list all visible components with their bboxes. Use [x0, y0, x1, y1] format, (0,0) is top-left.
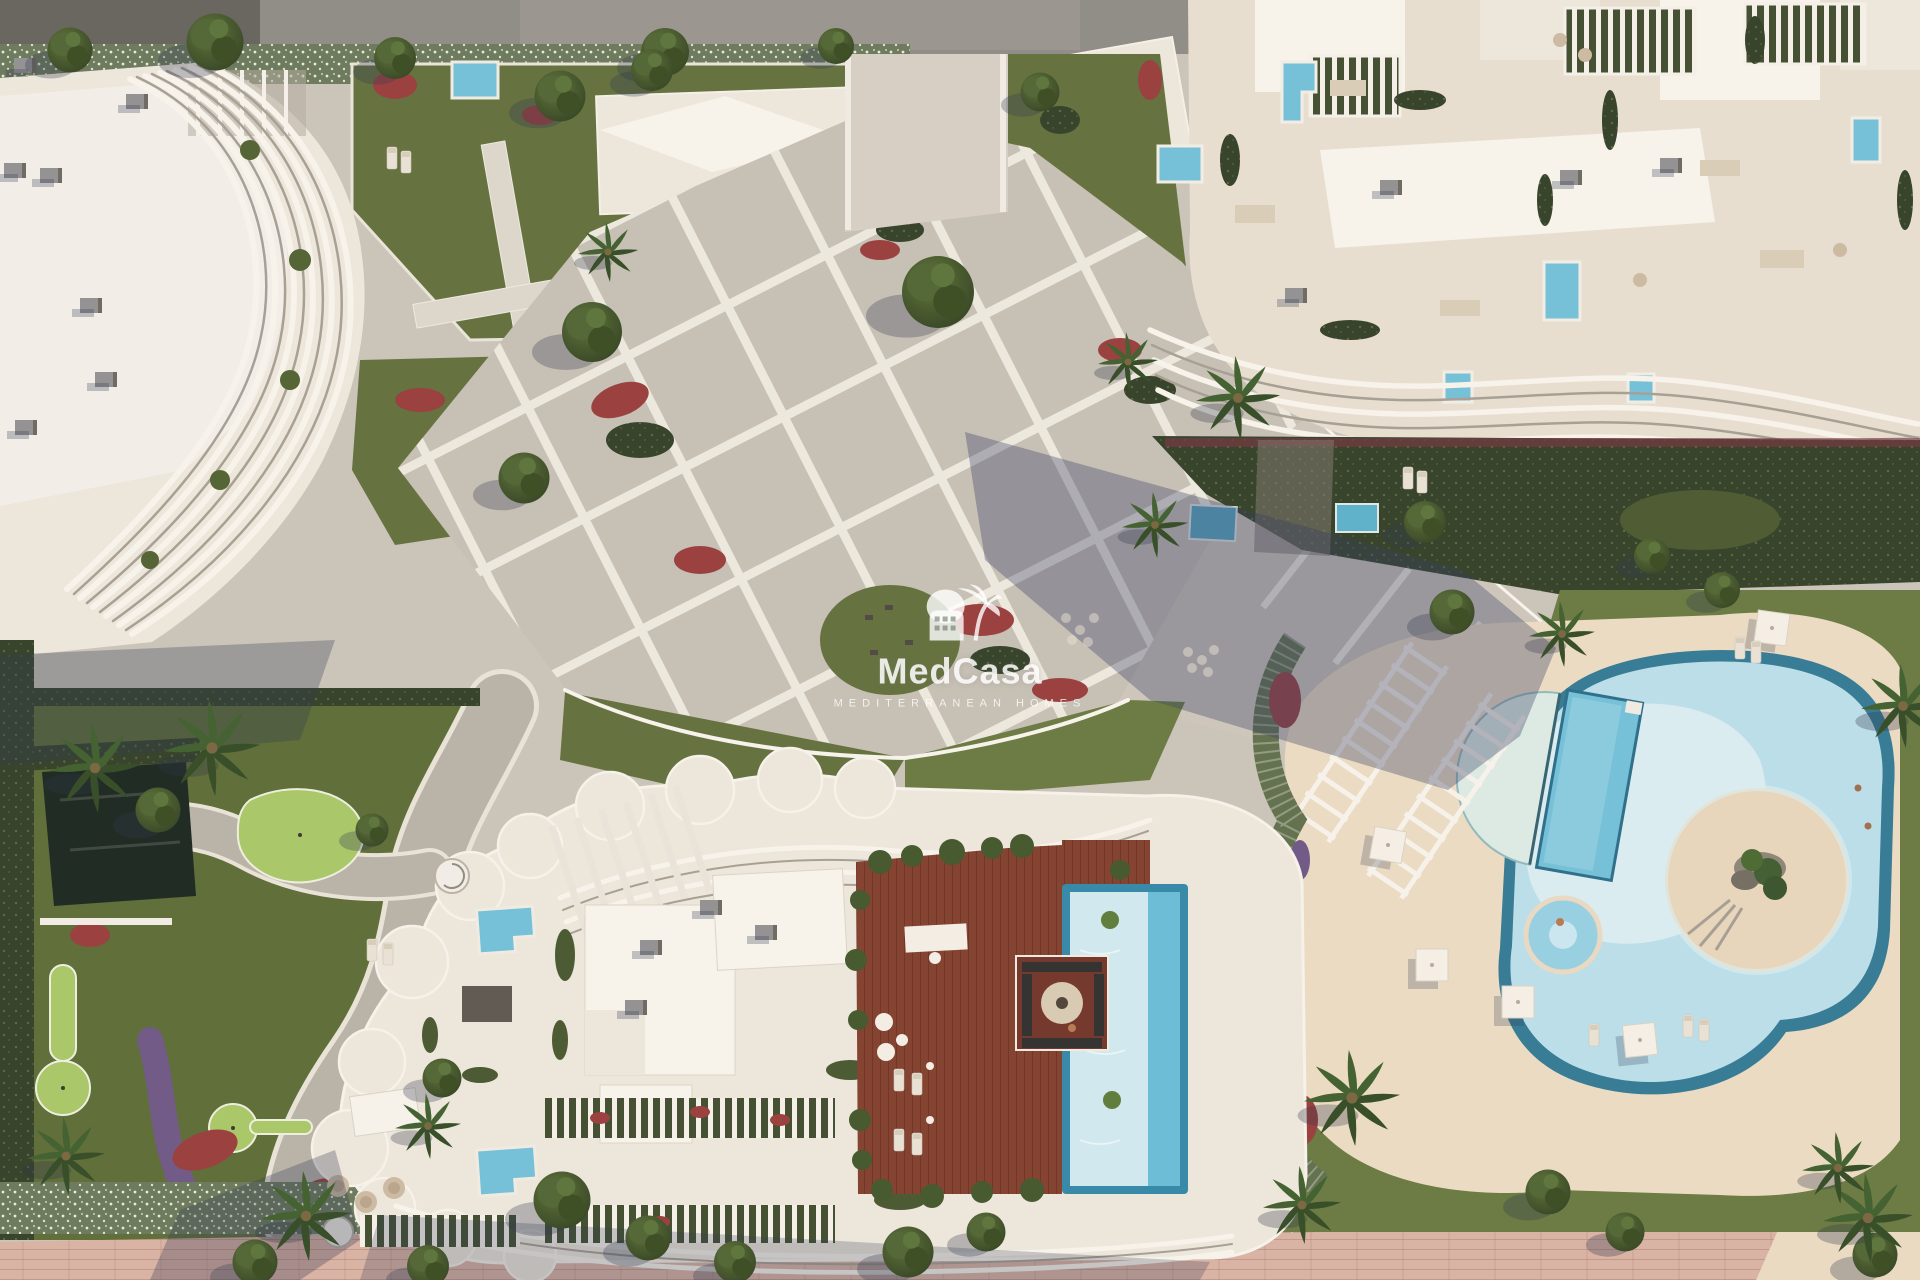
aerial-render: MedCasa MEDITERRANEAN HOMES [0, 0, 1920, 1280]
render-canvas [0, 0, 1920, 1280]
light-wash [0, 0, 1920, 1280]
